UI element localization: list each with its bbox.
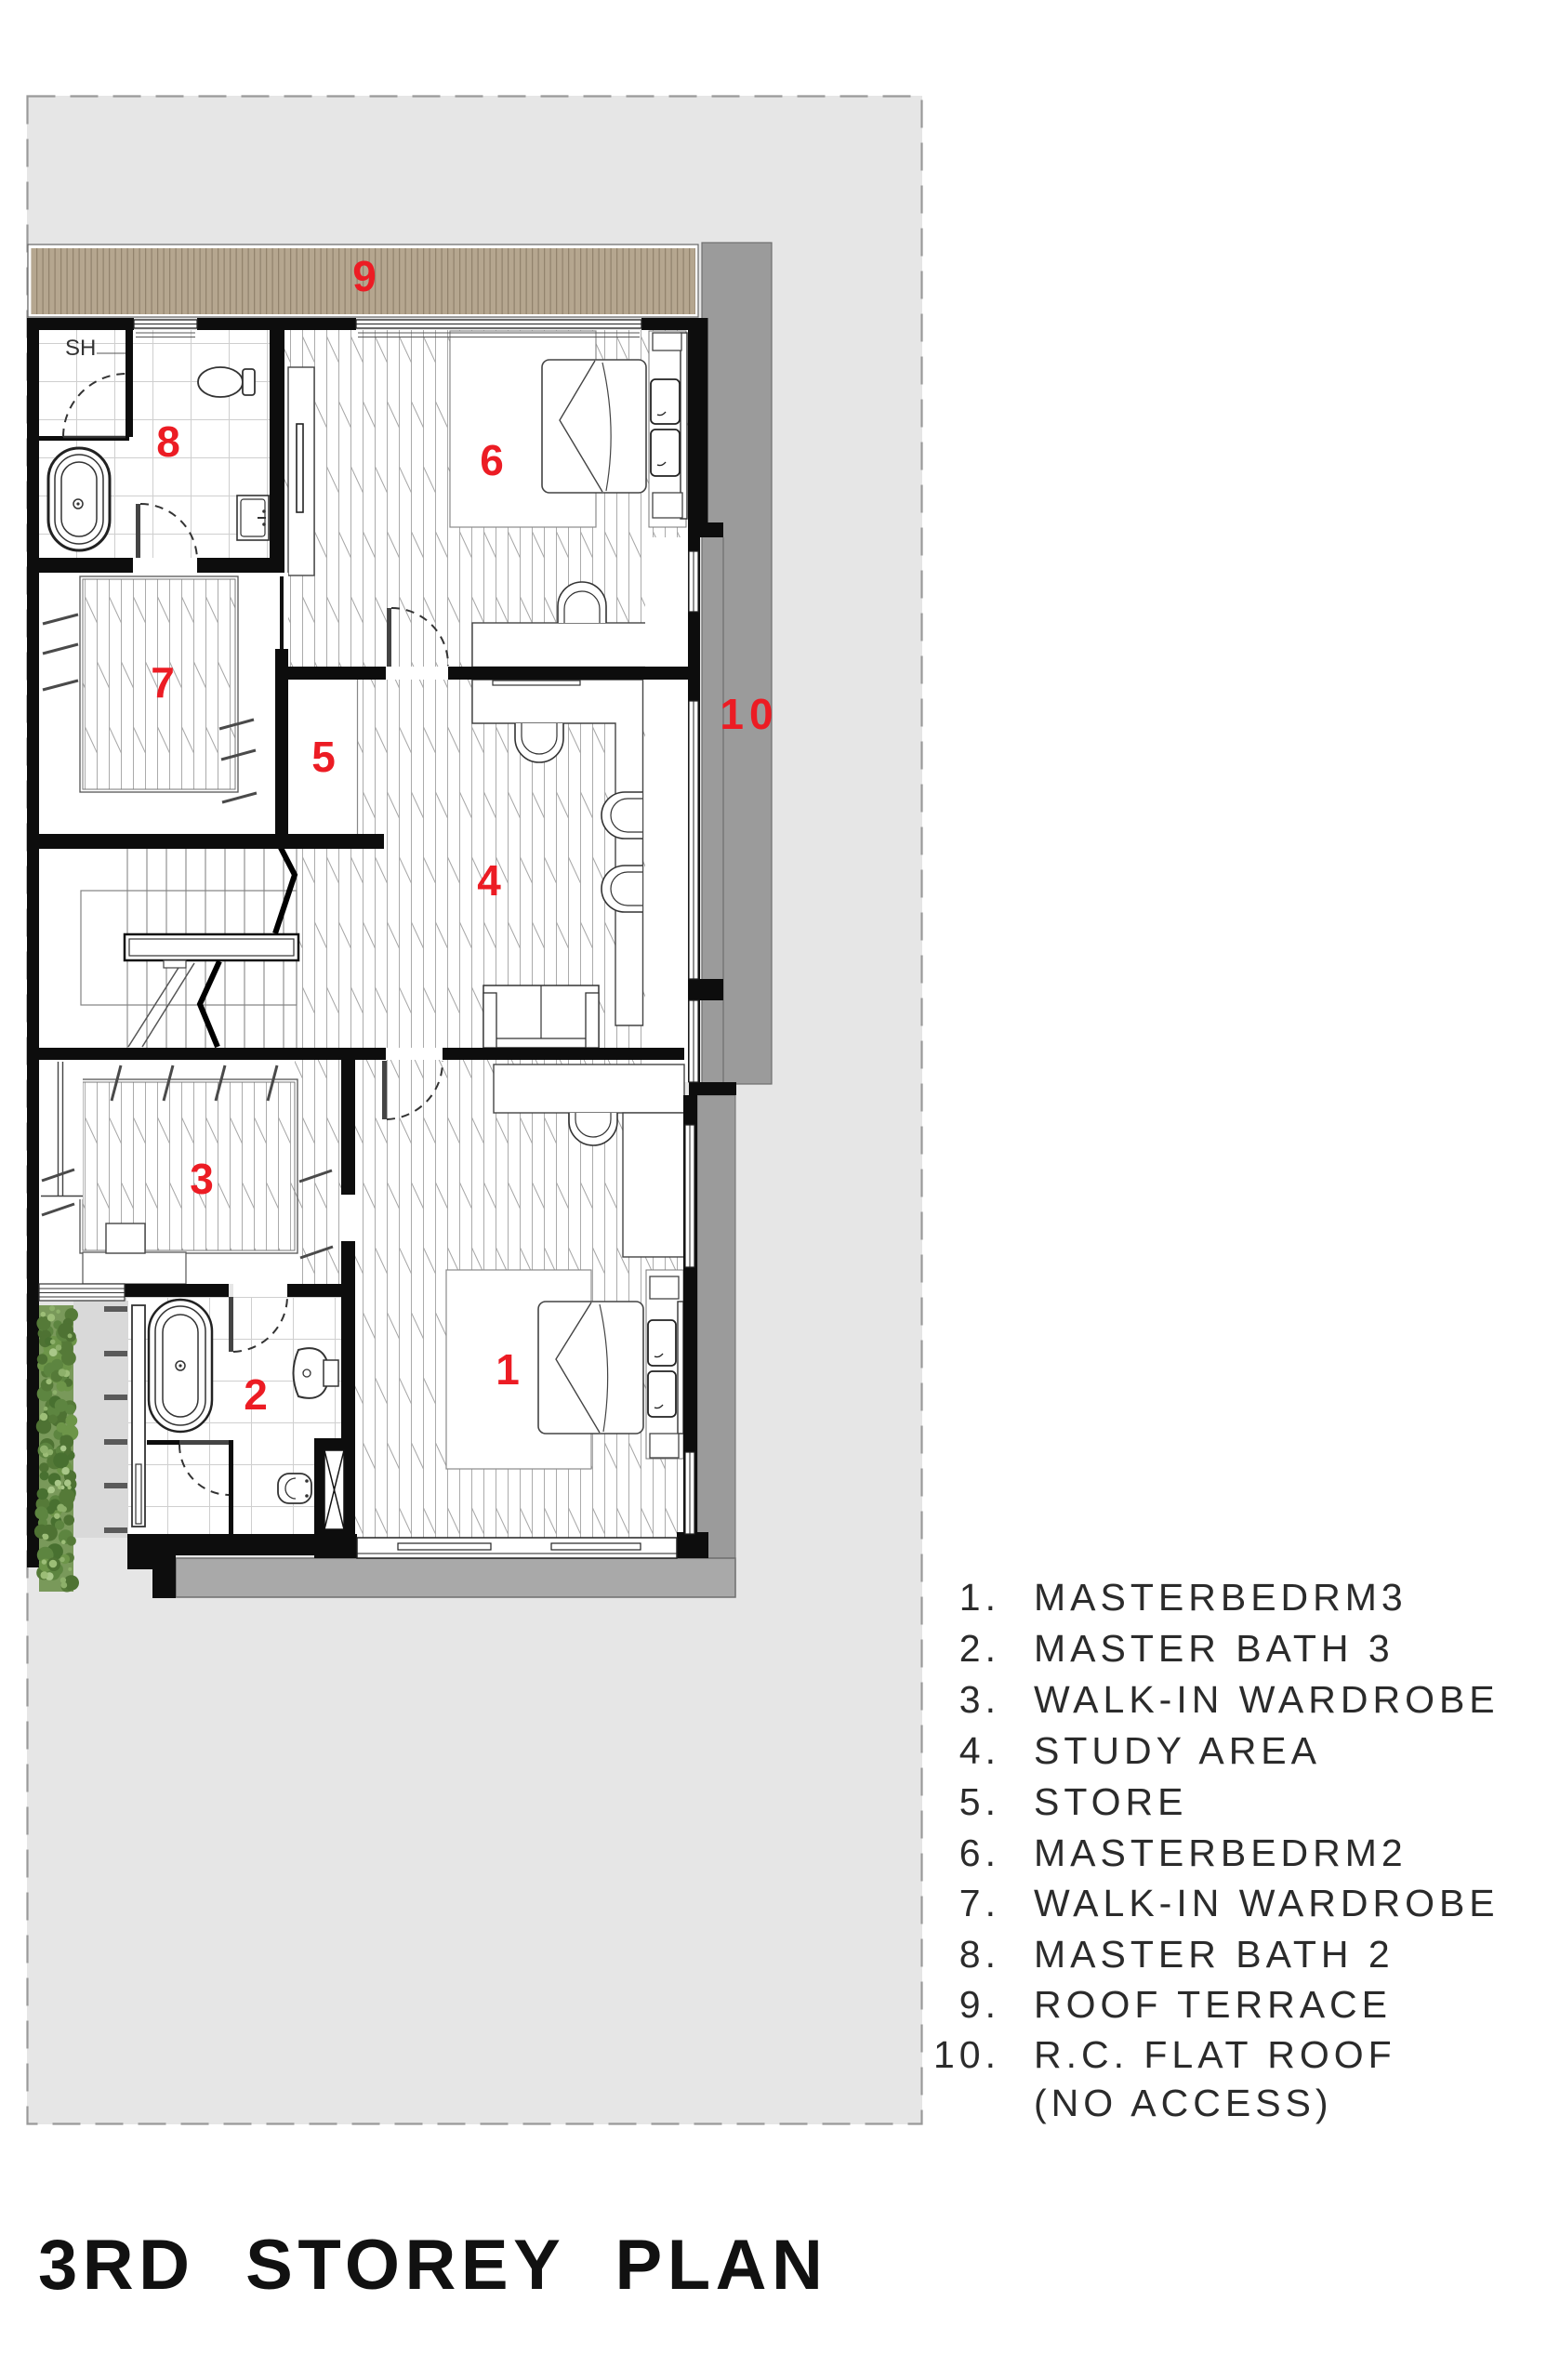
svg-text:3RD STOREY PLAN: 3RD STOREY PLAN xyxy=(38,2226,827,2305)
svg-text:5.: 5. xyxy=(959,1780,1000,1823)
svg-text:SH: SH xyxy=(65,336,96,361)
svg-text:STUDY AREA: STUDY AREA xyxy=(1034,1729,1321,1772)
svg-text:10: 10 xyxy=(720,690,778,738)
svg-text:3: 3 xyxy=(190,1155,214,1203)
svg-text:WALK-IN WARDROBE: WALK-IN WARDROBE xyxy=(1034,1678,1500,1721)
svg-text:7: 7 xyxy=(151,658,175,707)
svg-text:1.: 1. xyxy=(959,1576,1000,1619)
svg-text:STORE: STORE xyxy=(1034,1780,1188,1823)
svg-text:3.: 3. xyxy=(959,1678,1000,1721)
svg-text:9.: 9. xyxy=(959,1983,1000,2026)
svg-text:8: 8 xyxy=(156,417,180,466)
svg-text:1: 1 xyxy=(496,1345,520,1394)
svg-text:MASTERBEDRM3: MASTERBEDRM3 xyxy=(1034,1576,1408,1619)
svg-text:2: 2 xyxy=(244,1370,268,1419)
svg-text:MASTER BATH 2: MASTER BATH 2 xyxy=(1034,1933,1395,1976)
svg-text:5: 5 xyxy=(311,733,336,781)
svg-text:WALK-IN WARDROBE: WALK-IN WARDROBE xyxy=(1034,1882,1500,1924)
svg-text:(NO ACCESS): (NO ACCESS) xyxy=(1034,2082,1333,2124)
svg-text:R.C. FLAT ROOF: R.C. FLAT ROOF xyxy=(1034,2033,1396,2076)
svg-text:10.: 10. xyxy=(933,2033,1000,2076)
svg-text:6.: 6. xyxy=(959,1831,1000,1874)
svg-text:6: 6 xyxy=(480,436,504,484)
svg-text:MASTER BATH 3: MASTER BATH 3 xyxy=(1034,1627,1395,1670)
svg-text:MASTERBEDRM2: MASTERBEDRM2 xyxy=(1034,1831,1408,1874)
svg-text:2.: 2. xyxy=(959,1627,1000,1670)
svg-text:8.: 8. xyxy=(959,1933,1000,1976)
svg-text:4.: 4. xyxy=(959,1729,1000,1772)
svg-text:4: 4 xyxy=(477,856,501,905)
svg-text:7.: 7. xyxy=(959,1882,1000,1924)
svg-text:9: 9 xyxy=(352,252,377,300)
svg-text:ROOF TERRACE: ROOF TERRACE xyxy=(1034,1983,1392,2026)
